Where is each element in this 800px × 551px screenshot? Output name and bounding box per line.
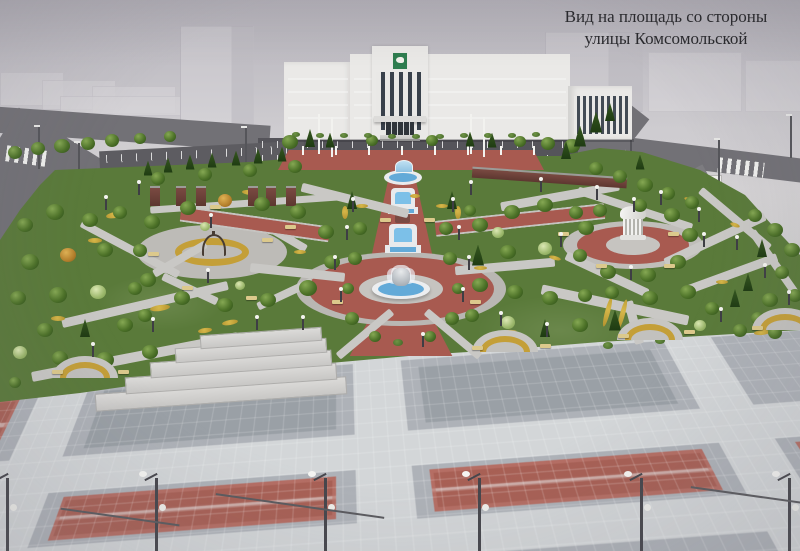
tree	[613, 170, 627, 183]
flower-bed	[51, 316, 65, 321]
tree	[17, 218, 33, 232]
bench	[470, 300, 481, 304]
street-lamp-globe-icon	[482, 504, 489, 511]
tree	[501, 316, 515, 329]
memorial-wall	[150, 186, 160, 206]
street-lamp	[640, 478, 643, 551]
tree	[589, 162, 603, 175]
bench	[285, 225, 296, 229]
tree	[573, 249, 587, 262]
tree	[133, 244, 147, 257]
bench	[52, 370, 63, 374]
flower-bed	[436, 204, 448, 208]
caption-line-1: Вид на площадь со стороны	[540, 6, 792, 28]
tree	[460, 133, 468, 138]
plaza-lamp-post	[467, 146, 469, 155]
park-lamp	[560, 235, 562, 247]
cascade-pavilion-2	[389, 224, 417, 246]
tree	[288, 160, 302, 173]
tree	[138, 309, 152, 322]
tree	[637, 178, 653, 192]
park-lamp	[720, 310, 722, 322]
bench	[668, 232, 679, 236]
entrance-doors	[386, 122, 414, 135]
street-lamp-globe-icon	[10, 504, 17, 511]
bench	[472, 346, 483, 350]
plaza-lamp-post	[533, 146, 535, 155]
park-lamp	[334, 258, 336, 270]
tree	[484, 133, 492, 138]
plaza-lamp-post	[335, 146, 337, 155]
memorial-wall	[196, 186, 206, 206]
tree	[164, 131, 176, 142]
tree	[144, 215, 160, 229]
tree	[128, 282, 142, 295]
plaza-lamp-post	[401, 146, 403, 155]
arbor-finial	[212, 231, 215, 236]
tree	[151, 172, 165, 185]
tree	[472, 278, 488, 292]
tree	[465, 309, 479, 322]
bench	[246, 296, 257, 300]
tree	[369, 331, 381, 342]
tree	[472, 218, 488, 232]
rotunda-base	[620, 235, 646, 240]
tree	[200, 222, 210, 231]
emblem-horse	[396, 57, 404, 63]
bench	[540, 344, 551, 348]
rotunda-colonnade	[623, 219, 643, 236]
tree	[31, 142, 45, 155]
central-fountain-tier	[392, 268, 410, 286]
tree	[642, 291, 658, 305]
road-lamp	[718, 140, 720, 182]
tree	[507, 285, 523, 299]
street-lamp-globe-icon	[159, 504, 166, 511]
tree	[290, 205, 306, 219]
tree	[784, 243, 800, 257]
architectural-rendering: Вид на площадь со стороны улицы Комсомол…	[0, 0, 800, 551]
upper-pool-water	[389, 173, 417, 182]
tree	[342, 283, 354, 294]
tree	[748, 209, 762, 222]
tree	[217, 298, 233, 312]
park-lamp	[698, 210, 700, 222]
tree	[90, 285, 106, 299]
tree	[572, 318, 588, 332]
tree	[464, 205, 476, 216]
tree	[318, 225, 334, 239]
tree	[324, 255, 340, 269]
tree	[105, 134, 119, 147]
cascade-basin-2	[385, 245, 421, 253]
tree	[694, 320, 706, 331]
tree	[504, 205, 520, 219]
street-lamp	[478, 478, 481, 551]
tree	[767, 223, 783, 237]
caption-line-2: улицы Комсомольской	[540, 28, 792, 50]
flower-bed	[342, 206, 348, 219]
cascade-pavilion-glass	[394, 228, 412, 242]
tree	[292, 132, 300, 137]
park-lamp	[736, 238, 738, 250]
tree	[603, 342, 613, 349]
tree	[682, 228, 698, 242]
park-lamp	[92, 345, 94, 357]
flower-bed	[356, 204, 368, 208]
tree	[134, 133, 146, 144]
tree	[593, 204, 607, 217]
park-lamp	[546, 325, 548, 337]
bench	[182, 286, 193, 290]
tree	[445, 312, 459, 325]
tree	[538, 242, 552, 255]
tree	[508, 133, 516, 138]
park-lamp	[596, 188, 598, 200]
park-lamp	[138, 183, 140, 195]
park-lamp	[788, 293, 790, 305]
park-lamp	[105, 198, 107, 210]
bench	[262, 238, 273, 242]
tree	[393, 339, 403, 346]
building-right-wing-windows	[574, 96, 628, 134]
tree	[680, 285, 696, 299]
park-lamp	[500, 314, 502, 326]
park-lamp	[630, 268, 632, 280]
tree	[13, 346, 27, 359]
tree	[82, 213, 98, 227]
tree	[492, 227, 504, 238]
tree	[537, 198, 553, 212]
plaza-lamp-post	[500, 146, 502, 155]
upper-pool-canopy	[395, 160, 413, 173]
tree	[174, 291, 190, 305]
bench	[596, 264, 607, 268]
plaza-lamp-post	[302, 146, 304, 155]
road-lamp	[790, 116, 792, 158]
memorial-wall	[286, 186, 296, 206]
tree	[49, 287, 67, 303]
tree	[661, 187, 675, 200]
park-lamp	[302, 318, 304, 330]
bench	[664, 264, 675, 268]
tree	[97, 243, 113, 257]
park-lamp	[540, 180, 542, 192]
tree	[542, 291, 558, 305]
tree	[46, 204, 64, 220]
tree	[605, 286, 619, 299]
bench	[210, 205, 221, 209]
tree	[640, 268, 656, 282]
tree	[260, 293, 276, 307]
tree	[364, 133, 372, 138]
building-emblem	[392, 52, 408, 70]
tree	[353, 222, 367, 235]
flower-bed	[716, 280, 728, 284]
tree	[299, 280, 317, 296]
bench	[618, 334, 629, 338]
tree	[282, 135, 298, 149]
tree	[254, 197, 270, 211]
park-lamp	[352, 200, 354, 212]
tree	[113, 206, 127, 219]
park-lamp	[703, 235, 705, 247]
park-lamp	[633, 200, 635, 212]
street-lamp-head-icon	[462, 471, 470, 477]
tree	[198, 168, 212, 181]
tree	[532, 132, 540, 137]
tree	[348, 252, 362, 265]
tree	[180, 201, 196, 215]
park-lamp	[207, 271, 209, 283]
tree	[340, 133, 348, 138]
tree	[500, 245, 516, 259]
park-lamp	[660, 193, 662, 205]
park-lamp	[340, 290, 342, 302]
street-lamp	[155, 478, 158, 551]
street-lamp	[788, 478, 791, 551]
tree	[117, 318, 133, 332]
tree	[235, 281, 245, 290]
tree	[54, 139, 70, 153]
tree	[541, 137, 555, 150]
tree	[578, 221, 594, 235]
administration-building	[284, 46, 634, 142]
street-lamp	[6, 478, 9, 551]
street-lamp-head-icon	[624, 471, 632, 477]
bench	[118, 370, 129, 374]
tree	[762, 293, 778, 307]
street-lamp-head-icon	[772, 471, 780, 477]
tree	[443, 252, 457, 265]
bench	[380, 218, 391, 222]
tree	[21, 254, 39, 270]
caption: Вид на площадь со стороны улицы Комсомол…	[540, 6, 792, 50]
tree	[316, 133, 324, 138]
park-lamp	[458, 228, 460, 240]
cascade-pavilion-glass	[395, 192, 411, 204]
plaza-lamp-post	[434, 146, 436, 155]
tree	[705, 302, 719, 315]
tree	[10, 291, 26, 305]
tree	[81, 137, 95, 150]
bench	[752, 326, 763, 330]
tree	[569, 206, 583, 219]
tree	[514, 136, 526, 147]
tree	[412, 134, 420, 139]
tree	[578, 289, 592, 302]
bench	[148, 252, 159, 256]
park-lamp	[470, 183, 472, 195]
tree	[60, 248, 76, 262]
street-lamp-head-icon	[139, 471, 147, 477]
park-lamp	[210, 216, 212, 228]
tree	[8, 146, 22, 159]
flower-bed	[294, 250, 306, 254]
tree	[733, 324, 747, 337]
bench	[424, 218, 435, 222]
street-lamp-head-icon	[308, 471, 316, 477]
tree	[436, 134, 444, 139]
tree	[388, 134, 396, 139]
tree	[37, 323, 53, 337]
flower-bed	[88, 238, 102, 243]
tree	[142, 345, 158, 359]
street-lamp	[324, 478, 327, 551]
park-lamp	[346, 228, 348, 240]
street-lamp-globe-icon	[644, 504, 651, 511]
street-lamp-globe-icon	[792, 504, 799, 511]
park-lamp	[452, 200, 454, 212]
tree	[775, 266, 789, 279]
edge-flower-bed	[52, 356, 118, 378]
park-lamp	[468, 258, 470, 270]
park-lamp	[256, 318, 258, 330]
park-lamp	[422, 335, 424, 347]
park-lamp	[152, 320, 154, 332]
flower-bed	[410, 194, 420, 198]
tree	[345, 312, 359, 325]
tree	[243, 164, 257, 177]
flower-bed	[474, 266, 487, 270]
bench	[684, 330, 695, 334]
tree	[664, 208, 680, 222]
park-lamp	[764, 266, 766, 278]
tree	[140, 273, 156, 287]
tree	[424, 331, 436, 342]
park-lamp	[462, 290, 464, 302]
tree	[9, 377, 21, 388]
plaza-lamp-post	[368, 146, 370, 155]
tree	[439, 222, 453, 235]
